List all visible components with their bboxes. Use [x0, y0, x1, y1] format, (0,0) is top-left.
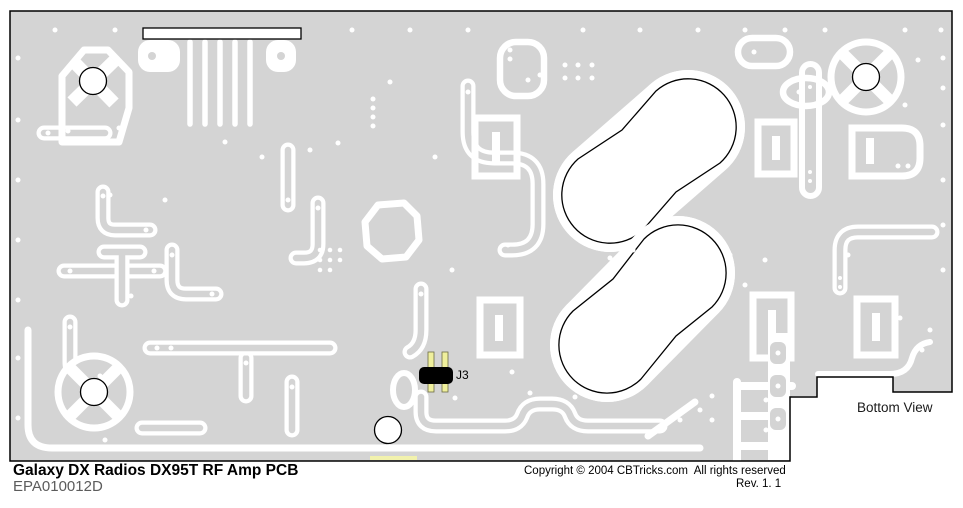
mounting-hole-bottom-left	[58, 356, 130, 428]
pcb-layout-page: J3 Bottom View Galaxy DX Radios DX95T RF…	[0, 0, 963, 508]
edge-connector-strip	[143, 28, 301, 39]
artifact-highlight	[370, 456, 417, 460]
notch-edge-pads	[768, 333, 790, 460]
board-title: Galaxy DX Radios DX95T RF Amp PCB	[13, 462, 298, 479]
revision-label: Rev. 1. 1	[736, 478, 781, 491]
pcb-artwork	[0, 0, 963, 508]
j3-reference-label: J3	[456, 369, 469, 382]
mounting-hole-top-right	[831, 42, 901, 112]
board-part-number: EPA010012D	[13, 479, 103, 496]
j3-body	[419, 367, 453, 384]
view-label: Bottom View	[857, 401, 933, 416]
copyright-notice: Copyright © 2004 CBTricks.com All rights…	[524, 465, 786, 478]
board-hole	[375, 417, 402, 444]
